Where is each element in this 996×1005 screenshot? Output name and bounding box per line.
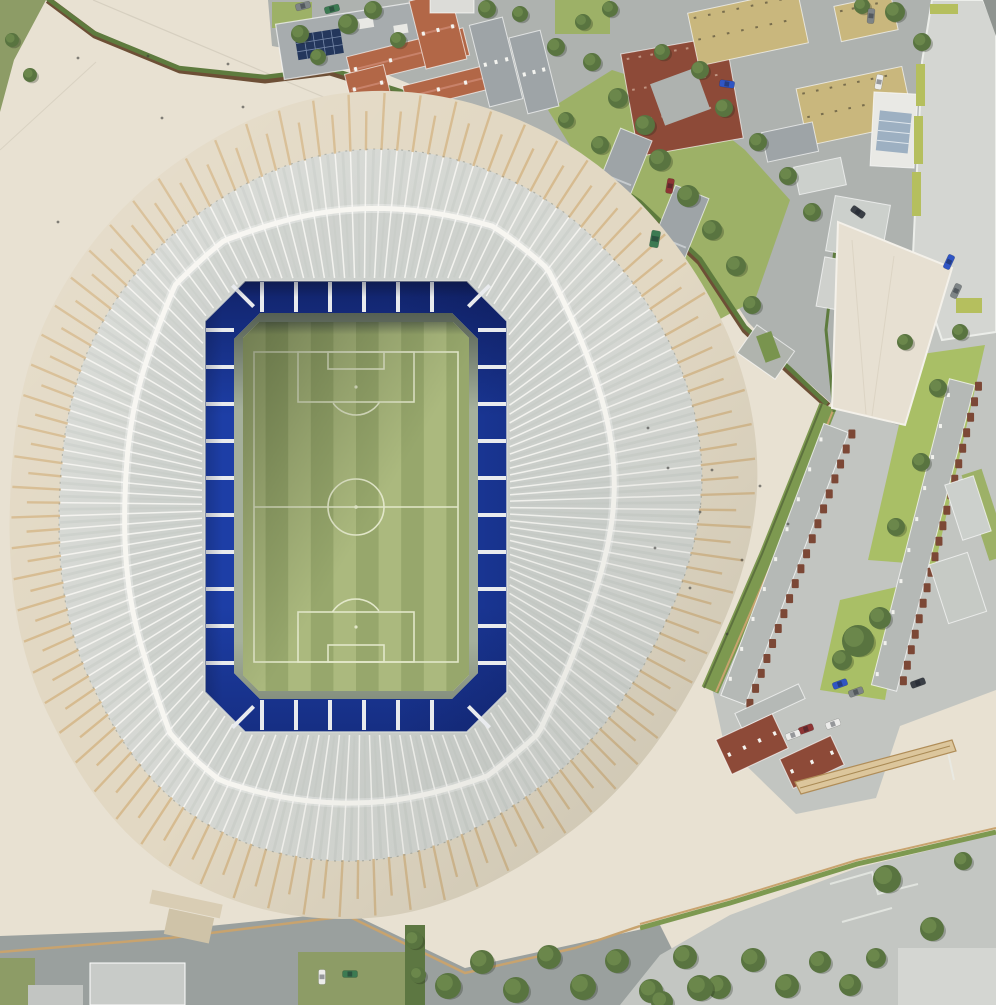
chimney [915, 517, 918, 521]
person-speck [147, 55, 150, 58]
brick-bay [792, 579, 799, 588]
brick-bay [943, 506, 950, 515]
brick-bay [900, 676, 907, 685]
brick-bay [935, 537, 942, 546]
person-speck [699, 511, 702, 514]
brick-bay [775, 624, 782, 633]
brick-bay [769, 639, 776, 648]
brick-bay [843, 444, 850, 453]
white-building-glass-roof [870, 92, 918, 168]
planter-strip [912, 172, 921, 216]
brick-bay [904, 661, 911, 670]
chimney [774, 557, 777, 561]
low-grey-building [90, 963, 185, 1005]
brick-bay [826, 489, 833, 498]
person-speck [711, 469, 714, 472]
brick-bay [831, 474, 838, 483]
person-speck [741, 559, 744, 562]
scene-canvas [0, 0, 996, 1005]
terrace-lower-slab [898, 948, 996, 1005]
person-speck [227, 63, 230, 66]
brick-bay [939, 521, 946, 530]
person-speck [759, 485, 762, 488]
person-speck [654, 547, 657, 550]
person-speck [667, 467, 670, 470]
person-speck [242, 106, 245, 109]
chimney [740, 647, 743, 651]
chimney [923, 486, 926, 490]
chimney [785, 527, 788, 531]
car [319, 970, 326, 985]
white-building [430, 0, 474, 13]
brick-bay [809, 534, 816, 543]
low-grey-building [28, 985, 83, 1005]
brick-bay [837, 459, 844, 468]
brick-bay [820, 504, 827, 513]
person-speck [647, 427, 650, 430]
chimney [884, 641, 887, 645]
person-speck [787, 523, 790, 526]
chimney [819, 437, 822, 441]
person-speck [726, 633, 729, 636]
chimney [751, 617, 754, 621]
brick-bay [920, 599, 927, 608]
brick-bay [786, 594, 793, 603]
brick-bay [797, 564, 804, 573]
person-speck [77, 57, 80, 60]
planter-strip [916, 64, 925, 106]
chimney [763, 587, 766, 591]
chimney [931, 455, 934, 459]
chimney [899, 579, 902, 583]
brick-bay [959, 444, 966, 453]
football-pitch [243, 322, 469, 691]
brick-bay [916, 614, 923, 623]
chimney [892, 610, 895, 614]
brick-bay [955, 459, 962, 468]
brick-bay [975, 382, 982, 391]
car [343, 971, 358, 978]
brick-bay [814, 519, 821, 528]
planter-strip [956, 298, 982, 313]
brick-bay [752, 684, 759, 693]
brick-bay [908, 645, 915, 654]
person-speck [161, 117, 164, 120]
chimney [797, 497, 800, 501]
brick-bay [932, 552, 939, 561]
chimney [907, 548, 910, 552]
brick-bay [758, 669, 765, 678]
brick-bay [912, 630, 919, 639]
brick-bay [780, 609, 787, 618]
person-speck [689, 587, 692, 590]
person-speck [57, 221, 60, 224]
brick-bay [763, 654, 770, 663]
chimney [808, 467, 811, 471]
car [867, 8, 875, 24]
stadium-model-photo [0, 0, 996, 1005]
planter-strip [914, 116, 923, 164]
chimney [939, 424, 942, 428]
planter-strip [930, 4, 958, 14]
brick-bay [963, 428, 970, 437]
brick-bay [924, 583, 931, 592]
grass-verge [298, 952, 420, 1005]
brick-bay [971, 397, 978, 406]
chimney [729, 677, 732, 681]
brick-bay [803, 549, 810, 558]
brick-bay [848, 430, 855, 439]
brick-bay [967, 413, 974, 422]
chimney [876, 672, 879, 676]
